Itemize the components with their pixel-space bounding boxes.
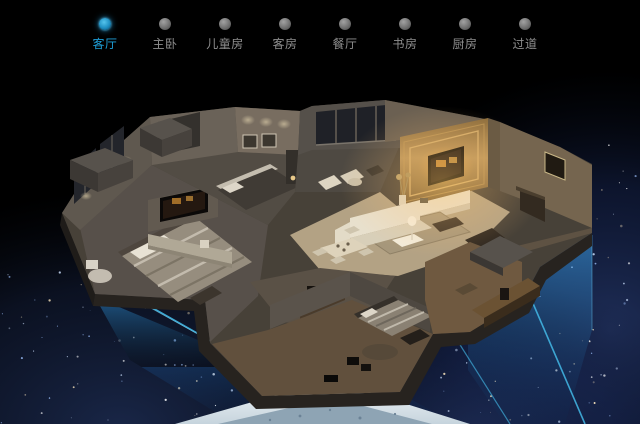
room-dot-icon xyxy=(159,18,171,30)
room-nav: 客厅 主卧 儿童房 客房 餐厅 书房 厨房 过道 xyxy=(75,18,555,64)
nav-item-guest-room[interactable]: 客房 xyxy=(255,18,315,64)
nav-item-kitchen[interactable]: 厨房 xyxy=(435,18,495,64)
nav-item-master-bedroom[interactable]: 主卧 xyxy=(135,18,195,64)
nav-item-label: 餐厅 xyxy=(332,37,357,51)
nav-item-label: 过道 xyxy=(512,37,537,51)
nav-item-label: 主卧 xyxy=(152,37,177,51)
room-dot-icon xyxy=(339,18,351,30)
room-dot-icon xyxy=(279,18,291,30)
nav-item-label: 客房 xyxy=(272,37,297,51)
nav-item-hallway[interactable]: 过道 xyxy=(495,18,555,64)
room-dot-icon xyxy=(459,18,471,30)
room-dot-icon xyxy=(99,18,111,30)
nav-item-childrens-room[interactable]: 儿童房 xyxy=(195,18,255,64)
room-dot-icon xyxy=(519,18,531,30)
room-dot-icon xyxy=(219,18,231,30)
room-dot-icon xyxy=(399,18,411,30)
nav-item-dining-room[interactable]: 餐厅 xyxy=(315,18,375,64)
nav-item-study[interactable]: 书房 xyxy=(375,18,435,64)
viewer-stage: 客厅 主卧 儿童房 客房 餐厅 书房 厨房 过道 xyxy=(0,0,640,424)
nav-item-label: 厨房 xyxy=(452,37,477,51)
nav-item-label: 儿童房 xyxy=(206,37,244,51)
nav-item-label: 客厅 xyxy=(92,37,117,51)
nav-item-living-room[interactable]: 客厅 xyxy=(75,18,135,64)
nav-item-label: 书房 xyxy=(392,37,417,51)
